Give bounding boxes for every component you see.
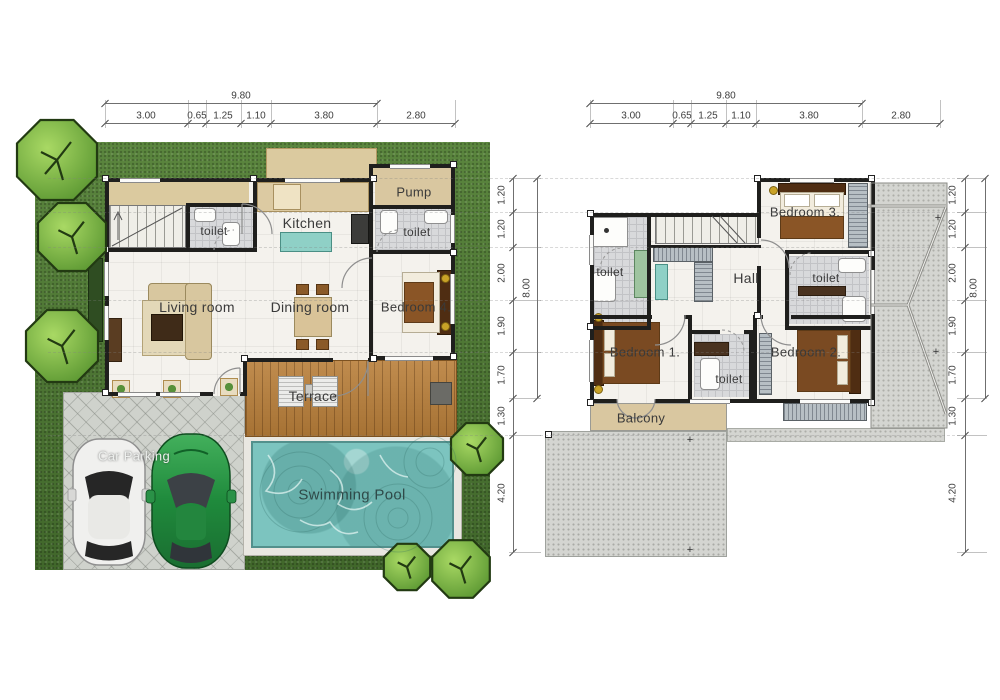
toilet-wc xyxy=(380,210,398,234)
bed2-pillow xyxy=(837,361,848,385)
wall xyxy=(785,250,875,254)
dim-seg: 0.65 xyxy=(187,111,206,122)
wall xyxy=(692,330,720,334)
dim-seg: 1.20 xyxy=(948,219,959,238)
dim-seg: 1.20 xyxy=(948,185,959,204)
dim-seg: 3.00 xyxy=(621,111,640,122)
dim-seg: 2.00 xyxy=(948,263,959,282)
dim-seg: 1.90 xyxy=(497,316,508,335)
dim-seg: 1.70 xyxy=(948,365,959,384)
wall xyxy=(253,178,257,252)
wall xyxy=(373,250,455,254)
wall xyxy=(753,315,757,403)
window xyxy=(390,164,430,169)
sofa-side xyxy=(185,283,212,360)
wall xyxy=(243,358,247,396)
dim-seg: 1.25 xyxy=(698,111,717,122)
survey-mark: + xyxy=(935,212,941,224)
window xyxy=(160,392,200,397)
coffee-table xyxy=(151,314,183,341)
room-label-hall: Hall xyxy=(733,270,758,286)
wall xyxy=(590,326,651,330)
shower xyxy=(592,217,628,247)
wall xyxy=(785,250,789,330)
entry-canopy xyxy=(266,148,377,180)
room-label-toilet: toilet xyxy=(403,225,430,239)
room-label-terrace: Terrace xyxy=(289,388,338,404)
wardrobe xyxy=(759,333,772,395)
room-label-kitchen: Kitchen xyxy=(283,215,332,231)
fridge xyxy=(273,184,301,210)
wall xyxy=(785,326,875,330)
dining-chair xyxy=(316,339,329,350)
column-marker xyxy=(587,399,594,406)
dim-seg: 2.80 xyxy=(891,111,910,122)
staircase-upper xyxy=(655,215,759,244)
tv-console xyxy=(108,318,122,362)
bed3-lamp xyxy=(769,186,778,195)
dim-seg: 1.10 xyxy=(246,111,265,122)
room-label-toilet: toilet xyxy=(812,271,839,285)
wardrobe xyxy=(653,247,713,262)
window xyxy=(118,392,156,397)
wall xyxy=(688,315,692,403)
dining-chair xyxy=(296,284,309,295)
wall xyxy=(757,178,761,238)
dining-chair xyxy=(296,339,309,350)
floor-plan-sheet: + + + + xyxy=(0,0,1000,700)
wall xyxy=(451,164,455,360)
dim-seg: 3.00 xyxy=(136,111,155,122)
dim-height-total: 8.00 xyxy=(969,278,980,297)
bed4-lamp xyxy=(441,274,450,283)
column-marker xyxy=(868,250,875,257)
column-marker xyxy=(450,161,457,168)
dim-seg: 1.70 xyxy=(497,365,508,384)
tv-console xyxy=(798,286,846,296)
dim-seg: 2.00 xyxy=(497,263,508,282)
wardrobe xyxy=(694,262,713,302)
room-label-pool: Swimming Pool xyxy=(298,487,405,504)
wall xyxy=(243,358,333,362)
kitchen-island xyxy=(280,232,332,252)
dim-height-total: 8.00 xyxy=(522,278,533,297)
survey-mark: + xyxy=(687,544,693,556)
dim-seg: 1.10 xyxy=(731,111,750,122)
window xyxy=(589,235,594,265)
bay-window-roof xyxy=(783,403,867,421)
dim-seg: 4.20 xyxy=(497,483,508,502)
desk xyxy=(655,264,668,300)
dim-seg: 0.65 xyxy=(672,111,691,122)
window xyxy=(589,340,594,382)
wall xyxy=(105,248,257,252)
entry-hall-floor xyxy=(109,182,249,205)
dim-seg: 1.20 xyxy=(497,185,508,204)
window xyxy=(690,399,730,404)
wall xyxy=(647,213,651,330)
dim-seg: 1.30 xyxy=(948,406,959,425)
dim-seg: 1.20 xyxy=(497,219,508,238)
window xyxy=(800,399,850,404)
wall xyxy=(590,399,617,403)
parking-pad xyxy=(63,392,245,570)
terrace-bench xyxy=(430,382,452,405)
lower-roof-patio xyxy=(545,431,727,557)
column-marker xyxy=(587,323,594,330)
window xyxy=(104,262,109,296)
column-marker xyxy=(450,249,457,256)
column-marker xyxy=(868,399,875,406)
dim-seg: 4.20 xyxy=(948,483,959,502)
toilet-sink xyxy=(838,258,866,273)
vanity xyxy=(694,342,729,356)
planter xyxy=(220,378,238,396)
room-label-dining: Dining room xyxy=(271,299,350,315)
wall xyxy=(373,205,455,209)
room-label-toilet: toilet xyxy=(596,265,623,279)
dim-seg: 3.80 xyxy=(314,111,333,122)
room-label-pump: Pump xyxy=(396,185,431,200)
wall xyxy=(744,330,753,334)
terrace-deck xyxy=(245,360,457,437)
towel-shelf xyxy=(634,250,648,298)
shower-drain xyxy=(604,228,609,233)
stove xyxy=(351,214,369,244)
room-label-toilet: toilet xyxy=(715,372,742,386)
window xyxy=(104,306,109,340)
wall xyxy=(369,164,373,360)
dining-chair xyxy=(316,284,329,295)
dim-seg: 2.80 xyxy=(406,111,425,122)
room-label-toilet: toilet xyxy=(200,224,227,238)
column-marker xyxy=(754,312,761,319)
column-marker xyxy=(370,355,377,362)
dim-seg: 3.80 xyxy=(799,111,818,122)
room-label-living: Living room xyxy=(159,299,235,315)
window xyxy=(450,215,455,243)
window xyxy=(870,270,875,314)
room-label-balcony: Balcony xyxy=(617,411,665,426)
wall xyxy=(590,213,761,217)
wall xyxy=(791,315,875,319)
wall xyxy=(186,203,253,207)
bed4-lamp xyxy=(441,322,450,331)
toilet-sink xyxy=(194,208,216,222)
column-marker xyxy=(241,355,248,362)
dim-seg: 1.30 xyxy=(497,406,508,425)
column-marker xyxy=(102,389,109,396)
wardrobe xyxy=(848,183,868,248)
wall xyxy=(186,203,190,252)
room-label-parking: Car Parking xyxy=(98,449,170,464)
column-marker xyxy=(450,353,457,360)
dim-seg: 1.90 xyxy=(948,316,959,335)
window xyxy=(385,356,433,361)
room-label-bedroom4: Bedroom 4. xyxy=(381,300,451,315)
bed1-lamp xyxy=(594,385,603,394)
dim-seg: 1.25 xyxy=(213,111,232,122)
wall xyxy=(590,315,652,319)
